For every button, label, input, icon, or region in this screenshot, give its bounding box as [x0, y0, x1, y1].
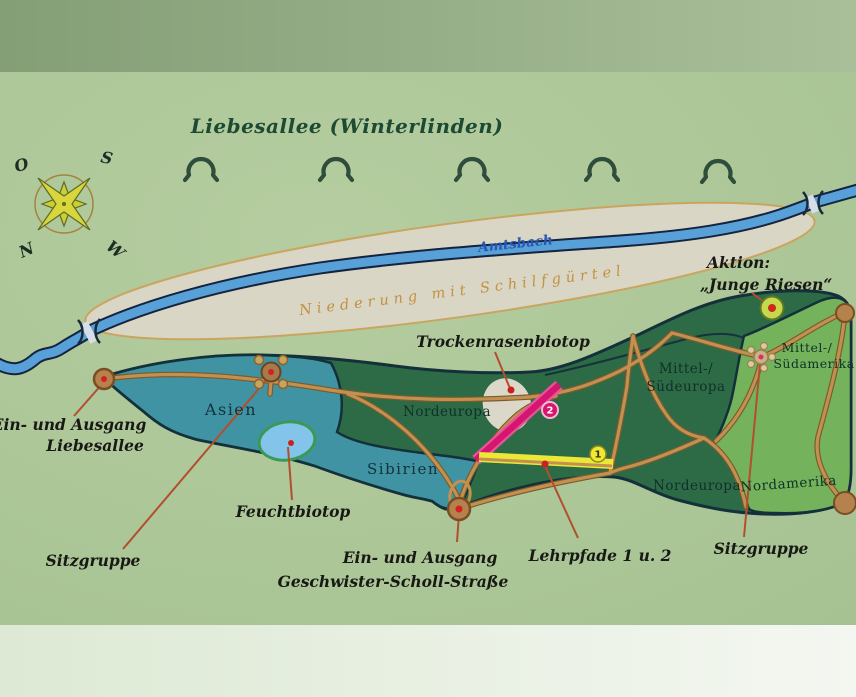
park-map: 2 1 — [0, 0, 856, 697]
region-label-northern-europe-s: Nordeuropa — [653, 478, 741, 494]
pond-marker-dot — [288, 440, 294, 446]
region-label-siberia: Sibirien — [367, 460, 439, 478]
region-label-central-southern-europe-1: Mittel-/ — [659, 361, 713, 377]
sign-title: Liebesallee (Winterlinden) — [190, 114, 504, 138]
path-junction-east-icon — [836, 304, 854, 322]
wet-biotope-label: Feuchtbiotop — [235, 502, 351, 521]
entrance-south-label-line1: Ein- und Ausgang — [342, 548, 498, 567]
photo-background-top — [0, 0, 856, 72]
seating-group-left-label: Sitzgruppe — [46, 551, 141, 570]
region-label-central-south-america-1: Mittel-/ — [782, 340, 833, 355]
region-label-asia: Asien — [204, 400, 257, 419]
trail-marker-dot — [542, 461, 549, 468]
entrance-west-label-line2: Liebesallee — [45, 436, 144, 455]
dry-grassland-label: Trockenrasenbiotop — [416, 332, 590, 351]
nature-trails-label: Lehrpfade 1 u. 2 — [528, 546, 672, 565]
region-label-central-south-america-2: Südamerika — [773, 356, 854, 371]
dry-grassland-marker-dot — [508, 387, 515, 394]
trail-2-badge: 2 — [542, 402, 558, 418]
photo-of-park-sign: 2 1 — [0, 0, 856, 697]
path-junction-southeast-icon — [834, 492, 856, 514]
action-site-label-line1: Aktion: — [705, 253, 770, 272]
entrance-west-icon — [94, 369, 114, 389]
svg-text:1: 1 — [595, 450, 602, 461]
entrance-south-icon — [448, 498, 470, 520]
entrance-west-label-line1: Ein- und Ausgang — [0, 415, 146, 434]
region-label-northern-europe-nw: Nordeuropa — [403, 404, 491, 420]
action-site-label-line2: „Junge Riesen“ — [700, 275, 832, 294]
photo-background-bottom — [0, 625, 856, 697]
seating-group-right-label: Sitzgruppe — [714, 539, 809, 558]
region-label-central-southern-europe-2: Südeuropa — [646, 379, 725, 395]
entrance-south-label-line2: Geschwister-Scholl-Straße — [278, 572, 509, 591]
svg-text:2: 2 — [547, 406, 554, 417]
trail-1-badge: 1 — [590, 446, 606, 462]
compass-rose-icon — [35, 175, 93, 233]
junge-riesen-site-icon — [761, 297, 784, 320]
